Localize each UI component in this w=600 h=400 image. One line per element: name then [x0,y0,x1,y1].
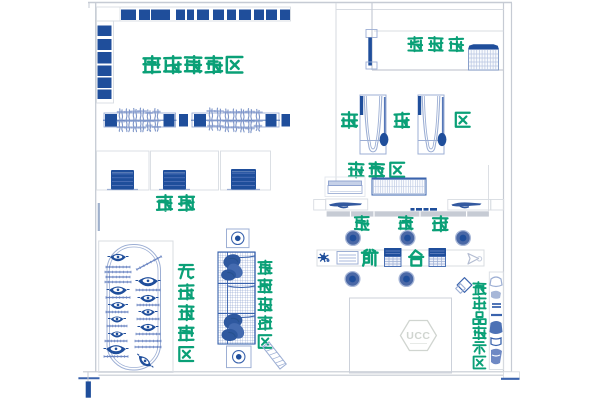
svg-text:UCC: UCC [406,330,430,342]
